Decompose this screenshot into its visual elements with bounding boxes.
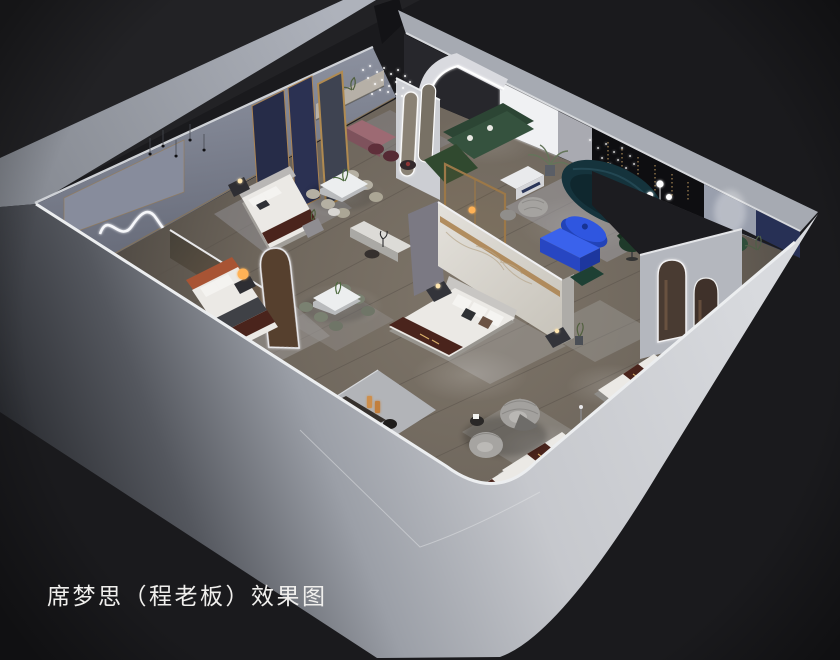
render-canvas: 席梦思（程老板）效果图 [0, 0, 840, 660]
caption-text: 席梦思（程老板）效果图 [47, 583, 328, 609]
showroom-render: 席梦思（程老板）效果图 [0, 0, 840, 660]
vignette [0, 0, 840, 660]
